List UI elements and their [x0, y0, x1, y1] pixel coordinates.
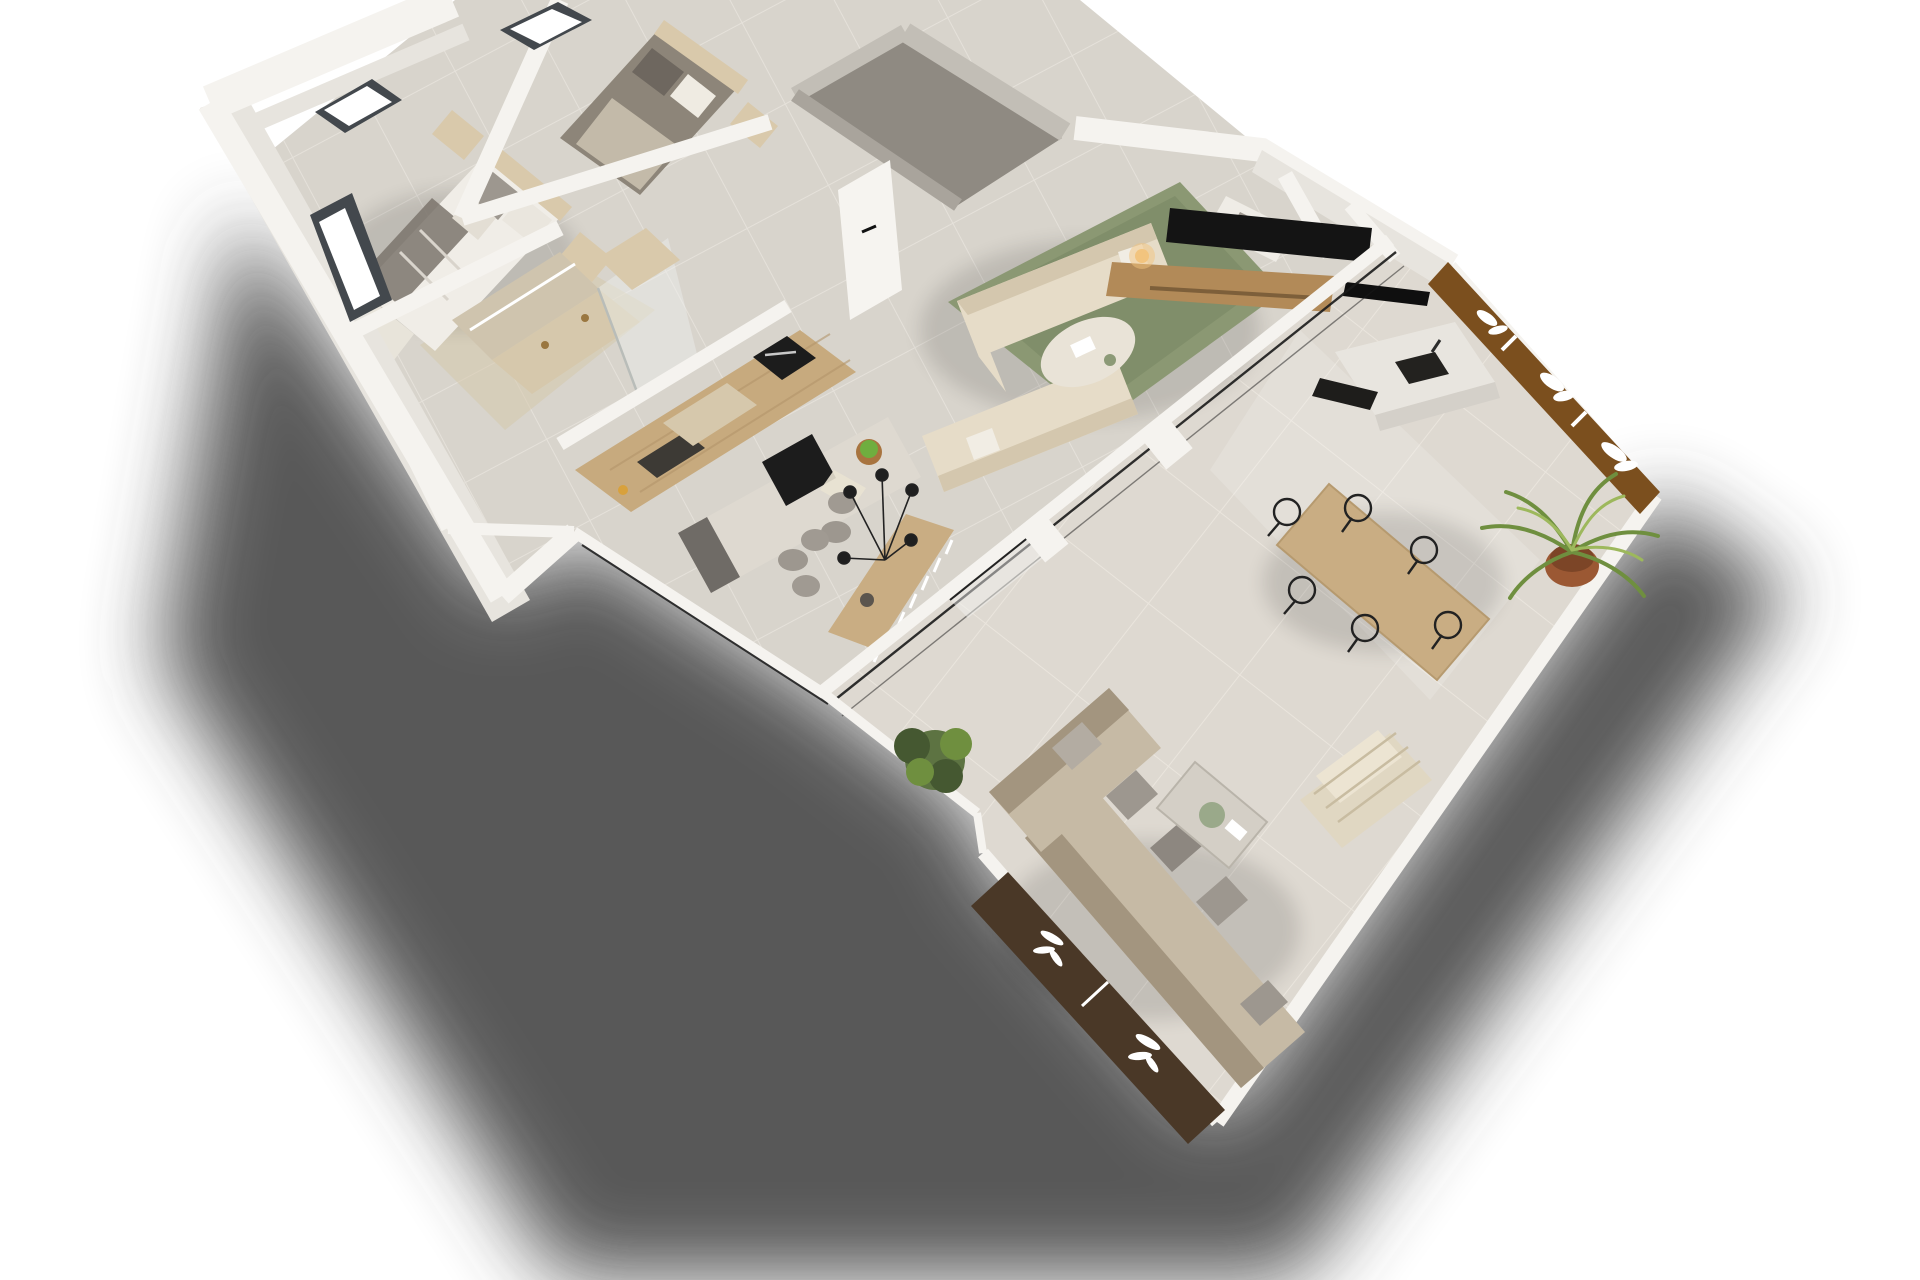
floorplan-render-stage [0, 0, 1920, 1280]
green-plate [1199, 802, 1225, 828]
table-lamp [1135, 249, 1149, 263]
brass-tap [541, 341, 549, 349]
nook-chair [801, 529, 829, 551]
yellow-decor-item [618, 485, 628, 495]
green-apples [860, 440, 878, 458]
wall-bath-south [448, 528, 574, 532]
vase [860, 593, 874, 607]
bar-stool [778, 549, 808, 571]
nook-chair [792, 575, 820, 597]
brass-tap [581, 314, 589, 322]
floorplan-svg [0, 0, 1920, 1280]
table-plant [1104, 354, 1116, 366]
